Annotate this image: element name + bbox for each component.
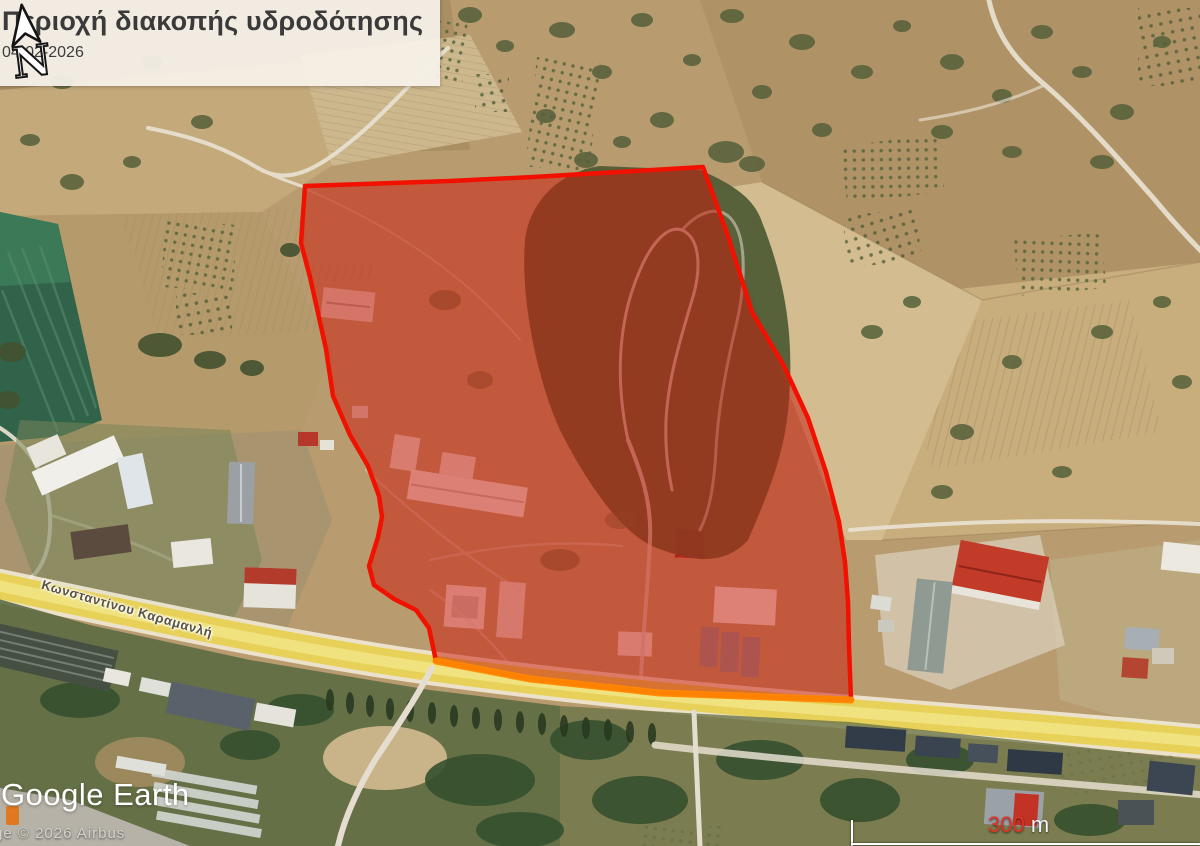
scale-bar-label: 300 m	[988, 812, 1049, 838]
scale-value: 300	[988, 812, 1025, 837]
google-earth-logo: Google Earth	[1, 777, 190, 813]
legend-date: 04-02-2026	[2, 44, 426, 62]
legend-title: Περιοχή διακοπής υδροδότησης	[2, 6, 426, 37]
legend-box: Περιοχή διακοπής υδροδότησης 04-02-2026	[0, 0, 440, 86]
scale-unit: m	[1025, 812, 1049, 837]
google-earth-viewport: Περιοχή διακοπής υδροδότησης 04-02-2026 …	[0, 0, 1200, 846]
copyright-attribution: Image © 2026 Airbus	[0, 825, 125, 842]
scale-bar-line	[851, 843, 1200, 845]
north-indicator: N	[0, 0, 60, 86]
map-canvas[interactable]	[0, 0, 1200, 846]
north-letter: N	[10, 35, 54, 86]
